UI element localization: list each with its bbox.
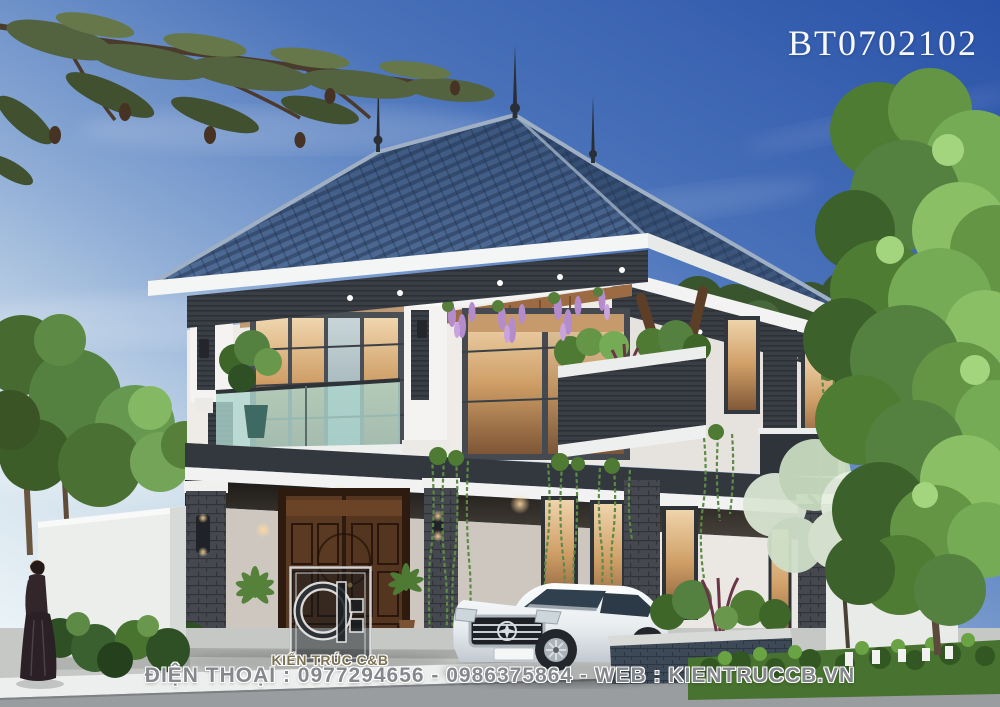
- wall-sconce: [199, 339, 209, 358]
- wing-slat-panel: [763, 330, 797, 438]
- porch-sconce-glow: [255, 522, 271, 538]
- watermark-contact-line: ĐIỆN THOẠI : 0977294656 - 0986375864 - W…: [0, 664, 1000, 688]
- scene: [0, 0, 1000, 707]
- architectural-rendering: BT0702102 KIẾN TRÚC C&B ĐIỆN THOẠI : 097…: [0, 0, 1000, 707]
- watermark-project-code: BT0702102: [788, 22, 978, 64]
- headlight: [535, 610, 561, 624]
- cb-logo-icon: [289, 566, 372, 665]
- license-plate: [494, 648, 534, 660]
- wall-sconce: [417, 320, 427, 338]
- headlight: [455, 608, 477, 622]
- corner-pillar-middle: [402, 290, 449, 456]
- watermark-logo: [289, 566, 372, 665]
- wing-window: [726, 318, 758, 412]
